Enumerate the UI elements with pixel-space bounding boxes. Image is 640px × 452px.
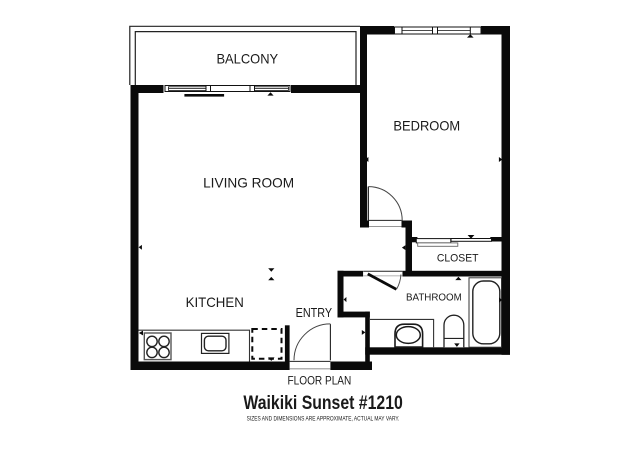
svg-text:CLOSET: CLOSET [437,253,479,265]
svg-text:BEDROOM: BEDROOM [393,117,460,133]
svg-text:FLOOR PLAN: FLOOR PLAN [288,375,352,387]
svg-text:KITCHEN: KITCHEN [186,294,244,310]
svg-text:LIVING ROOM: LIVING ROOM [203,175,294,191]
svg-text:SIZES AND DIMENSIONS ARE APPRO: SIZES AND DIMENSIONS ARE APPROXIMATE, AC… [247,416,400,423]
svg-text:ENTRY: ENTRY [296,306,333,320]
svg-text:BATHROOM: BATHROOM [406,293,462,304]
svg-text:BALCONY: BALCONY [216,51,278,67]
svg-text:Waikiki Sunset #1210: Waikiki Sunset #1210 [243,392,403,414]
